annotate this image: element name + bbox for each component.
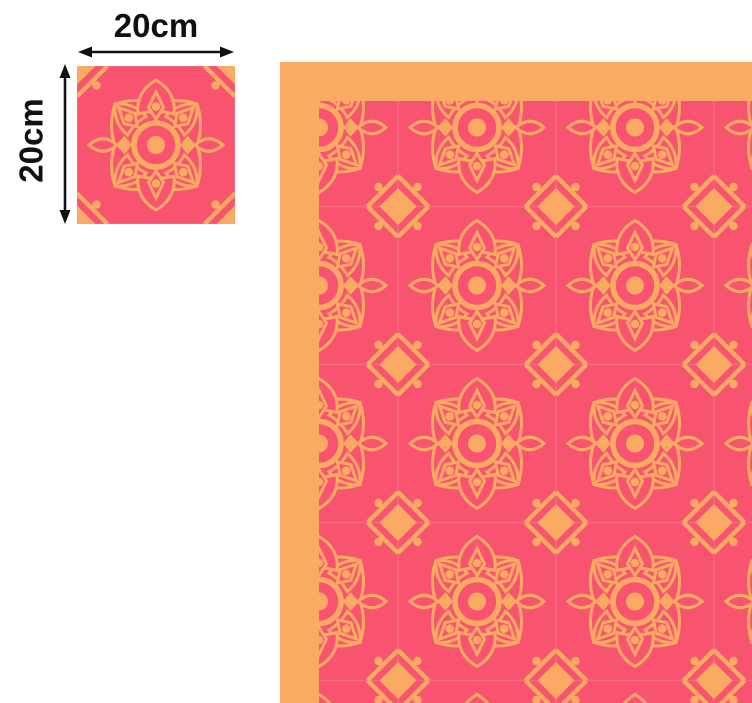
arrow-up-icon	[60, 64, 71, 78]
arrow-right-icon	[220, 47, 234, 58]
tile-pattern-fill	[319, 101, 752, 703]
width-dimension-label: 20cm	[77, 9, 235, 42]
height-dimension-arrow	[56, 63, 74, 225]
tiled-pattern-preview	[280, 62, 752, 703]
tile-dimension-figure: 20cm 20cm	[0, 0, 752, 703]
arrow-left-icon	[78, 47, 92, 58]
width-dimension-arrow	[77, 43, 235, 61]
height-dimension-label: 20cm	[15, 62, 48, 220]
arrow-down-icon	[60, 210, 71, 224]
sample-tile	[77, 66, 235, 224]
